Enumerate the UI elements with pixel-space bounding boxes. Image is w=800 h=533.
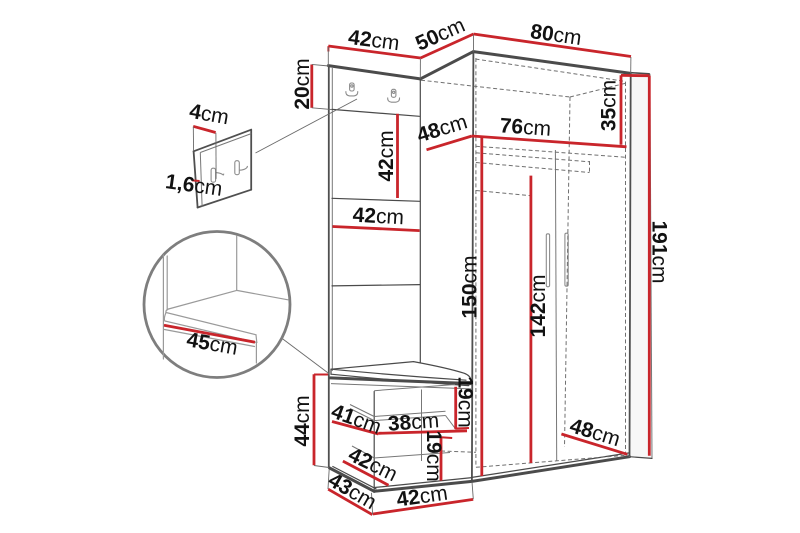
svg-text:44cm: 44cm — [291, 395, 314, 446]
svg-text:19cm: 19cm — [454, 376, 477, 427]
svg-text:42cm: 42cm — [352, 204, 404, 230]
svg-text:142cm: 142cm — [527, 274, 550, 337]
svg-text:19cm: 19cm — [422, 430, 445, 481]
svg-text:35cm: 35cm — [598, 80, 621, 131]
svg-text:191cm: 191cm — [647, 220, 670, 283]
svg-text:20cm: 20cm — [291, 58, 314, 109]
svg-text:150cm: 150cm — [459, 255, 482, 318]
svg-text:76cm: 76cm — [499, 114, 552, 141]
svg-text:42cm: 42cm — [375, 130, 398, 181]
